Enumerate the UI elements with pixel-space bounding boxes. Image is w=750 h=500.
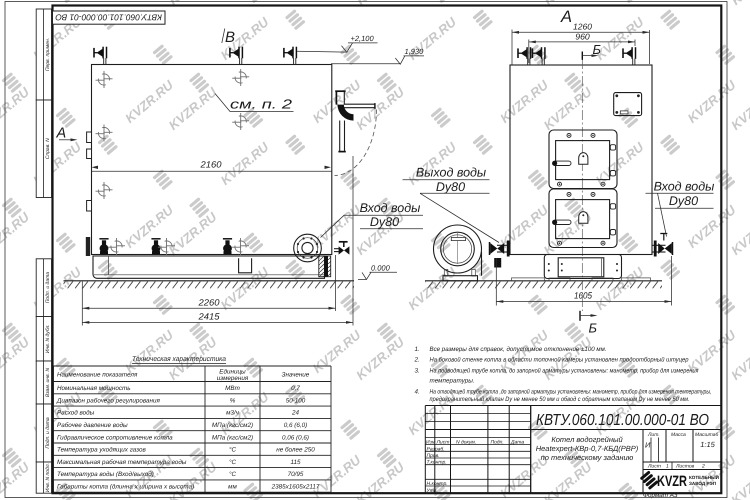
svg-text:Б: Б [593,42,602,57]
svg-text:0,06 (0,6): 0,06 (0,6) [282,434,309,441]
svg-text:Вход воды: Вход воды [360,201,421,215]
svg-text:Все размеры для справок, допус: Все размеры для справок, допустимое откл… [430,346,607,353]
svg-text:Н.контр.: Н.контр. [427,481,448,487]
svg-text:Dy80: Dy80 [370,215,399,229]
svg-text:960: 960 [575,32,590,42]
svg-text:температуры.: температуры. [430,378,475,385]
svg-text:115: 115 [290,459,301,466]
svg-text:50-100: 50-100 [286,397,306,404]
svg-text:2260: 2260 [197,297,219,307]
svg-text:А: А [56,126,67,142]
svg-text:Техническая характеристика: Техническая характеристика [132,356,226,363]
svg-text:Масса: Масса [671,432,686,438]
svg-text:Т.контр.: Т.контр. [427,460,447,466]
svg-text:Dy80: Dy80 [436,180,465,194]
svg-text:Лит.: Лит. [647,432,660,438]
svg-text:Максимальная рабочая температу: Максимальная рабочая температура воды [57,459,187,466]
svg-text:Подп.: Подп. [491,440,504,446]
svg-text:Габариты котла (длинна х ширин: Габариты котла (длинна х ширина х высота… [57,484,194,491]
svg-text:И: И [645,441,651,450]
svg-text:МПа (кгс/см2): МПа (кгс/см2) [212,422,253,429]
svg-text:Наименование показателя: Наименование показателя [57,372,138,379]
svg-text:Изм: Изм [426,440,436,446]
svg-text:МПа (кгс/см2): МПа (кгс/см2) [212,434,253,441]
svg-text:На подводящей трубе котла, д: На подводящей трубе котла, до запорной а… [430,368,700,375]
svg-text:2160: 2160 [199,160,221,170]
svg-text:МВт: МВт [225,385,240,392]
svg-text:2415: 2415 [197,311,220,321]
svg-text:0,6 (6,0): 0,6 (6,0) [284,422,307,429]
svg-text:см. п. 2: см. п. 2 [230,97,293,112]
svg-text:м3/ч: м3/ч [226,410,240,417]
svg-text:Диапазон рабочего регулировани: Диапазон рабочего регулирования [56,397,160,404]
svg-text:Лист: Лист [436,440,450,446]
svg-text:не более 250: не более 250 [276,447,315,454]
svg-text:Справ. N: Справ. N [45,138,51,159]
svg-text:Инв. N дубл.: Инв. N дубл. [45,324,51,353]
svg-text:Выход воды: Выход воды [416,166,486,180]
svg-text:Номинальная мощность: Номинальная мощность [57,385,131,392]
svg-text:2.: 2. [414,357,420,364]
svg-text:по техническому заданию: по техническому заданию [541,453,634,462]
svg-text:Рабочее давление воды: Рабочее давление воды [57,422,128,429]
svg-text:Котел водогрейный: Котел водогрейный [551,435,623,444]
svg-text:4.: 4. [415,388,420,395]
svg-text:КОТЕЛЬНЫЙ: КОТЕЛЬНЫЙ [689,474,719,480]
svg-text:ЗАВОД РЭП: ЗАВОД РЭП [689,481,716,486]
svg-text:1:15: 1:15 [700,440,715,449]
svg-text:0,7: 0,7 [291,385,300,392]
svg-text:1.: 1. [415,346,420,353]
svg-text:Heatexpert-КВр-0,7-КБД(РВР): Heatexpert-КВр-0,7-КБД(РВР) [536,444,639,453]
svg-text:N докум.: N докум. [456,440,476,446]
svg-text:Лист: Лист [647,464,661,470]
svg-text:Пров.: Пров. [427,453,440,459]
svg-text:°С: °С [229,471,237,478]
svg-text:Б: Б [589,321,598,336]
svg-text:Формат А3: Формат А3 [643,492,678,499]
svg-text:70/95: 70/95 [288,471,304,478]
svg-text:°С: °С [229,447,237,454]
svg-text:На отводящей трубе котла ,до з: На отводящей трубе котла ,до запорной ар… [430,388,712,395]
svg-text:Масштаб: Масштаб [695,432,719,438]
svg-text:Дата: Дата [510,440,524,446]
svg-text:Расход воды: Расход воды [57,410,95,417]
svg-text:предохранительный клапан Dу н: предохранительный клапан Dу не менее 50 … [430,396,690,403]
svg-text:Вход воды: Вход воды [654,180,715,194]
svg-text:Подп. и дата: Подп. и дата [45,272,51,304]
svg-text:1,930: 1,930 [405,47,425,56]
svg-text:Dy80: Dy80 [669,194,698,208]
svg-text:Инв. N подл.: Инв. N подл. [45,463,51,492]
svg-text:мм: мм [228,484,237,491]
svg-text:Температура уходящих газов: Температура уходящих газов [57,447,146,454]
svg-text:0.000: 0.000 [371,263,391,272]
svg-text:1260: 1260 [573,22,592,32]
svg-text:Гидравлическое сопротивление к: Гидравлическое сопротивление котла [57,434,173,441]
svg-text:На боковой стенке котла в обла: На боковой стенке котла в области топочн… [430,357,689,364]
svg-text:Утв.: Утв. [427,488,438,494]
svg-text:Разраб.: Разраб. [427,446,445,452]
svg-text:%: % [230,397,236,404]
svg-text:КВТУ.060.101.00.000-01 ВО: КВТУ.060.101.00.000-01 ВО [536,412,709,429]
svg-text:+2,100: +2,100 [351,34,375,43]
svg-text:КВТУ.060.101.00.000-01 ВО: КВТУ.060.101.00.000-01 ВО [55,13,162,23]
svg-text:Температура воды (Вход/выход): Температура воды (Вход/выход) [57,471,154,478]
svg-text:В: В [225,29,235,46]
svg-text:Листов: Листов [675,464,695,470]
svg-text:Подп. и дата: Подп. и дата [45,417,51,449]
svg-text:Взам. инв. N: Взам. инв. N [45,368,51,398]
svg-text:°С: °С [229,459,237,466]
svg-text:24: 24 [291,410,300,417]
svg-text:измерения: измерения [217,375,249,382]
svg-text:2385х1605х2117: 2385х1605х2117 [271,484,320,491]
svg-text:Значение: Значение [282,372,310,379]
svg-text:3.: 3. [415,368,420,375]
svg-text:KVZR: KVZR [657,473,687,490]
svg-text:2: 2 [701,464,705,470]
svg-text:1: 1 [666,464,669,470]
svg-text:А: А [560,8,572,26]
svg-text:Перв. примен.: Перв. примен. [45,38,51,71]
svg-text:1605: 1605 [574,291,593,301]
